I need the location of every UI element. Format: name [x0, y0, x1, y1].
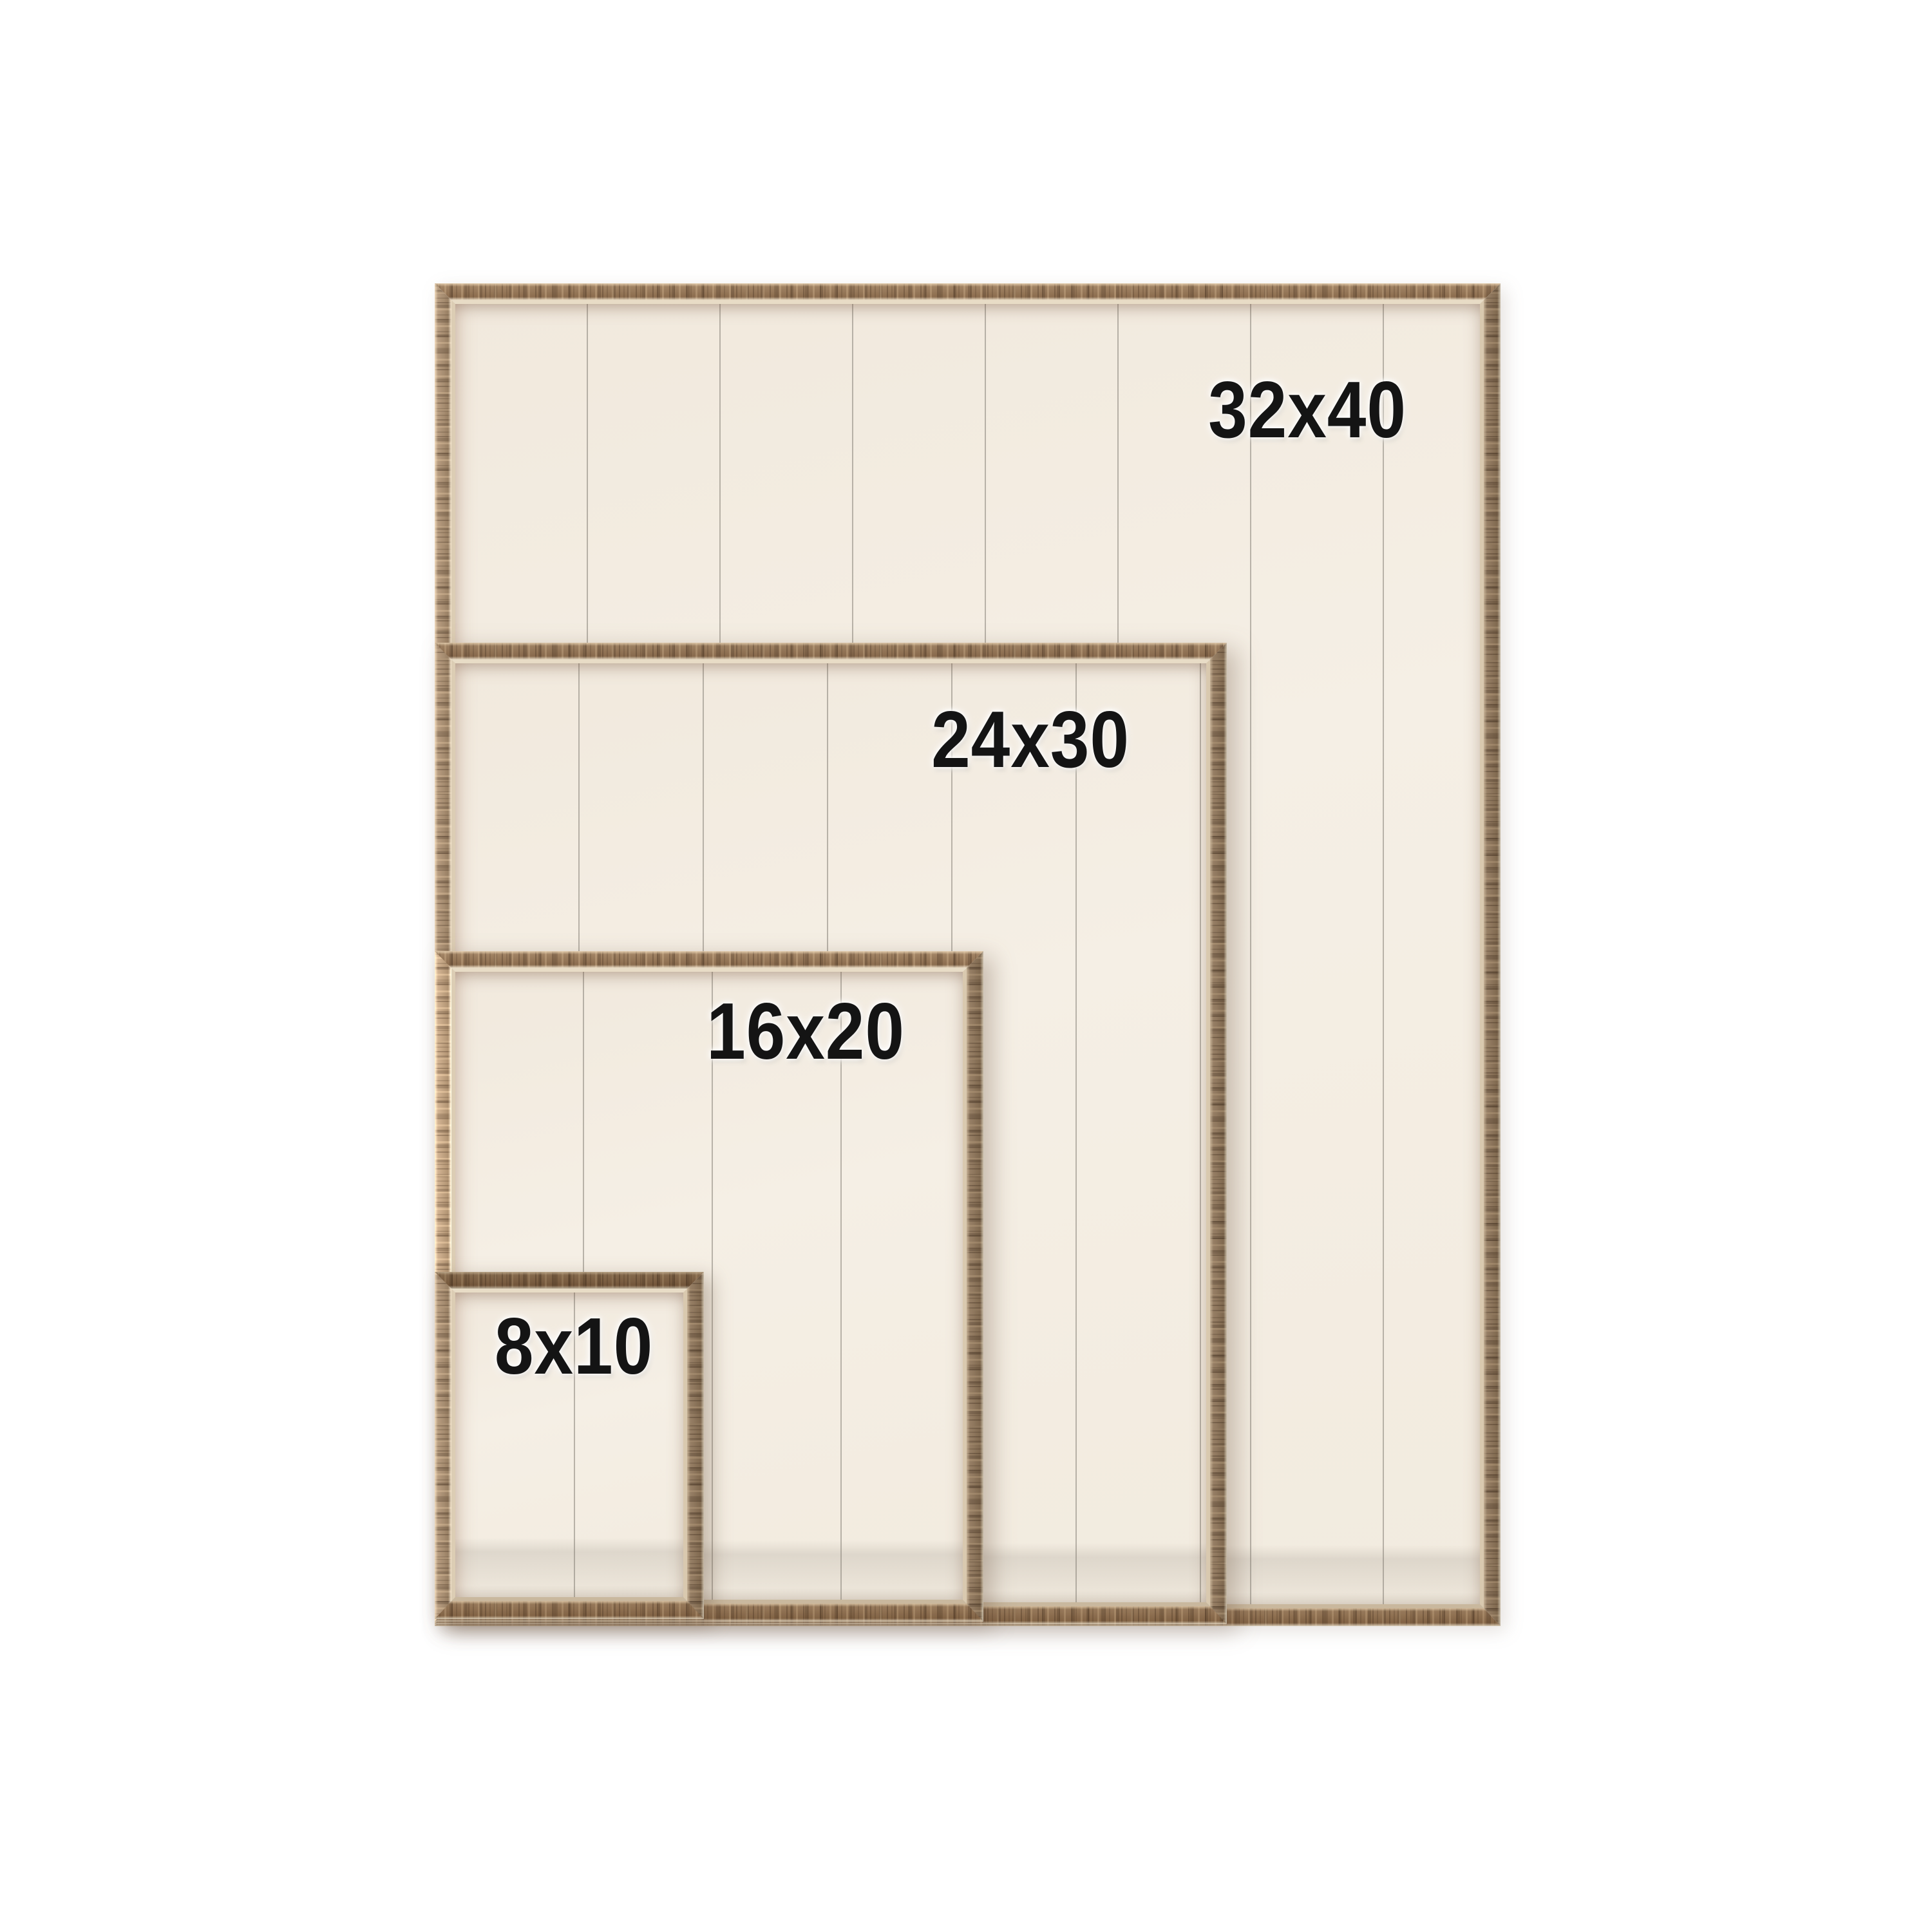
- frame-rail-right: [1484, 283, 1501, 1626]
- frame-rail-left: [435, 1272, 451, 1619]
- frame-rail-top: [435, 1272, 704, 1289]
- size-label-8x10: 8x10: [495, 1307, 653, 1387]
- frame-rail-top: [435, 283, 1501, 300]
- frame-rail-top: [435, 643, 1227, 659]
- frame-rail-right: [687, 1272, 704, 1619]
- size-label-16x20: 16x20: [706, 992, 905, 1072]
- frame-8x10: 8x10: [435, 1272, 704, 1619]
- frame-rail-top: [435, 951, 983, 968]
- size-label-24x30: 24x30: [931, 700, 1130, 780]
- frame-rail-bottom: [435, 1601, 704, 1619]
- size-label-32x40: 32x40: [1208, 370, 1406, 450]
- frame-size-chart-canvas: { "page": { "type": "product-size-compar…: [0, 0, 1932, 1932]
- frame-rail-right: [1210, 643, 1227, 1624]
- frame-rail-right: [967, 951, 983, 1622]
